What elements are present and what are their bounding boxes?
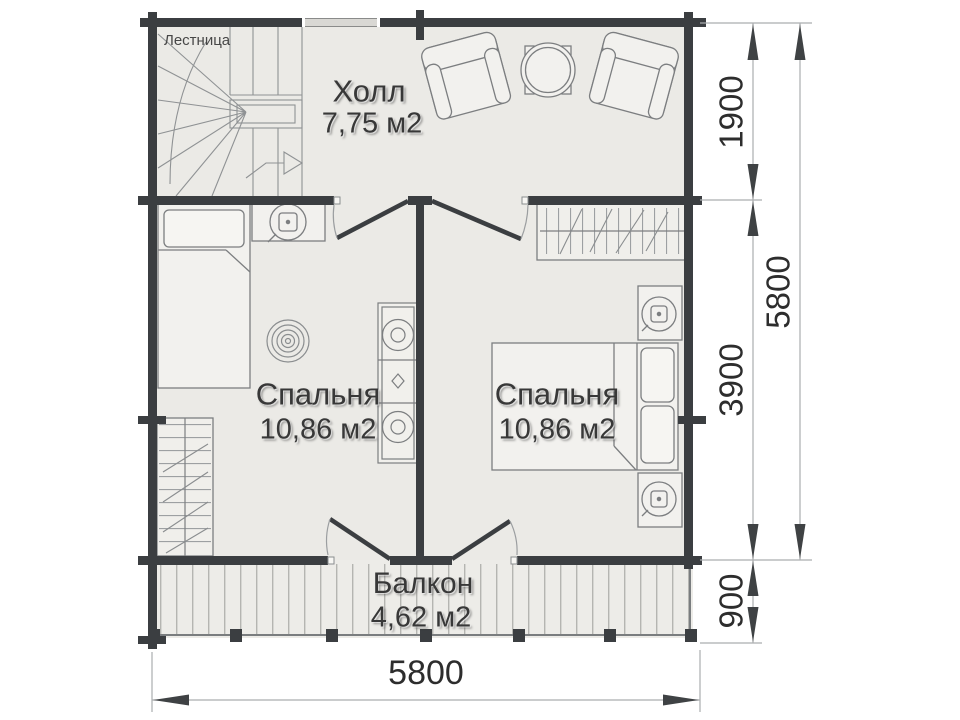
- dimension-right-total: 5800: [762, 255, 795, 328]
- log-joint-tick: [416, 10, 424, 40]
- room-name-bedroom-right: Спальня: [495, 379, 620, 410]
- nightstand-lamp-icon: [638, 473, 682, 527]
- nightstand-lamp-icon: [252, 204, 325, 242]
- room-name-bedroom-left: Спальня: [256, 379, 381, 410]
- room-area-balcony: 4,62 м2: [371, 604, 472, 633]
- log-joint-tick: [138, 416, 166, 424]
- log-joint-tick: [678, 416, 706, 424]
- floor-plan-drawing: [0, 0, 960, 720]
- room-name-hall: Холл: [332, 76, 405, 107]
- room-area-hall: 7,75 м2: [322, 110, 423, 139]
- room-area-bedroom-right: 10,86 м2: [499, 416, 616, 445]
- closet-icon: [537, 203, 687, 260]
- wardrobe-icon: [157, 418, 213, 556]
- floor-plan: Лестница Холл 7,75 м2 Спальня 10,86 м2 С…: [0, 0, 960, 720]
- window-icon: [302, 18, 380, 27]
- dimension-right-upper: 1900: [715, 75, 748, 148]
- nightstand-lamp-icon: [638, 286, 682, 340]
- single-bed-icon: [158, 204, 250, 388]
- dimension-bottom-width: 5800: [388, 656, 464, 690]
- door-jamb: [328, 557, 334, 564]
- dimension-balcony-depth: 900: [715, 573, 748, 628]
- dimension-right-lower: 3900: [715, 343, 748, 416]
- door-jamb: [511, 557, 517, 564]
- round-table-icon: [521, 43, 575, 97]
- door-jamb: [522, 197, 528, 204]
- room-name-balcony: Балкон: [373, 569, 474, 599]
- log-joint-tick: [138, 636, 166, 644]
- door-jamb: [334, 197, 340, 204]
- room-area-bedroom-left: 10,86 м2: [260, 416, 377, 445]
- dresser-icon: [378, 303, 418, 463]
- staircase-label: Лестница: [164, 33, 230, 48]
